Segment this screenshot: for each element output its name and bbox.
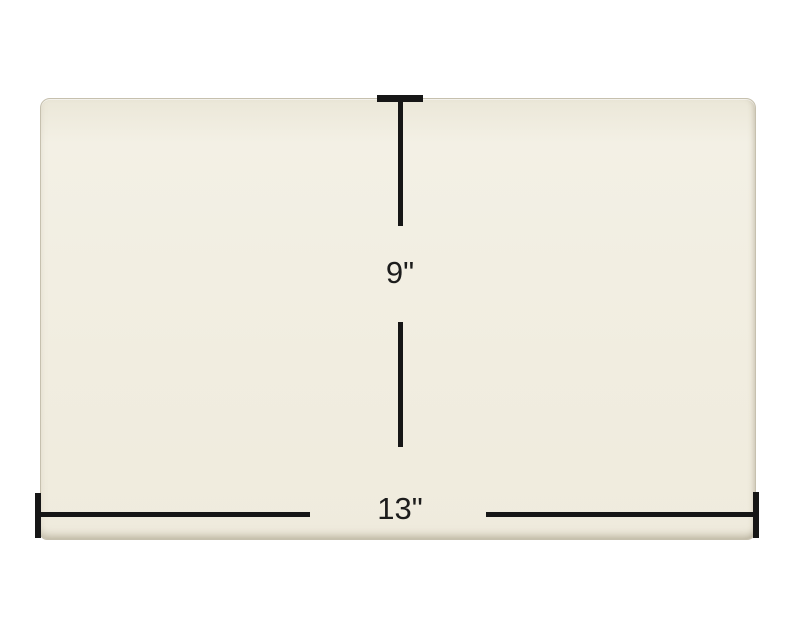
height-dimension-line-upper — [398, 98, 403, 226]
width-dimension-line-left — [38, 512, 310, 517]
width-dimension-right-tick — [753, 492, 759, 538]
width-dimension-line-right — [486, 512, 758, 517]
width-dimension-label: 13" — [350, 489, 450, 529]
product-dimension-image: 9" 13" — [0, 0, 800, 644]
height-dimension-line-lower — [398, 322, 403, 447]
height-dimension-label: 9" — [355, 253, 445, 293]
